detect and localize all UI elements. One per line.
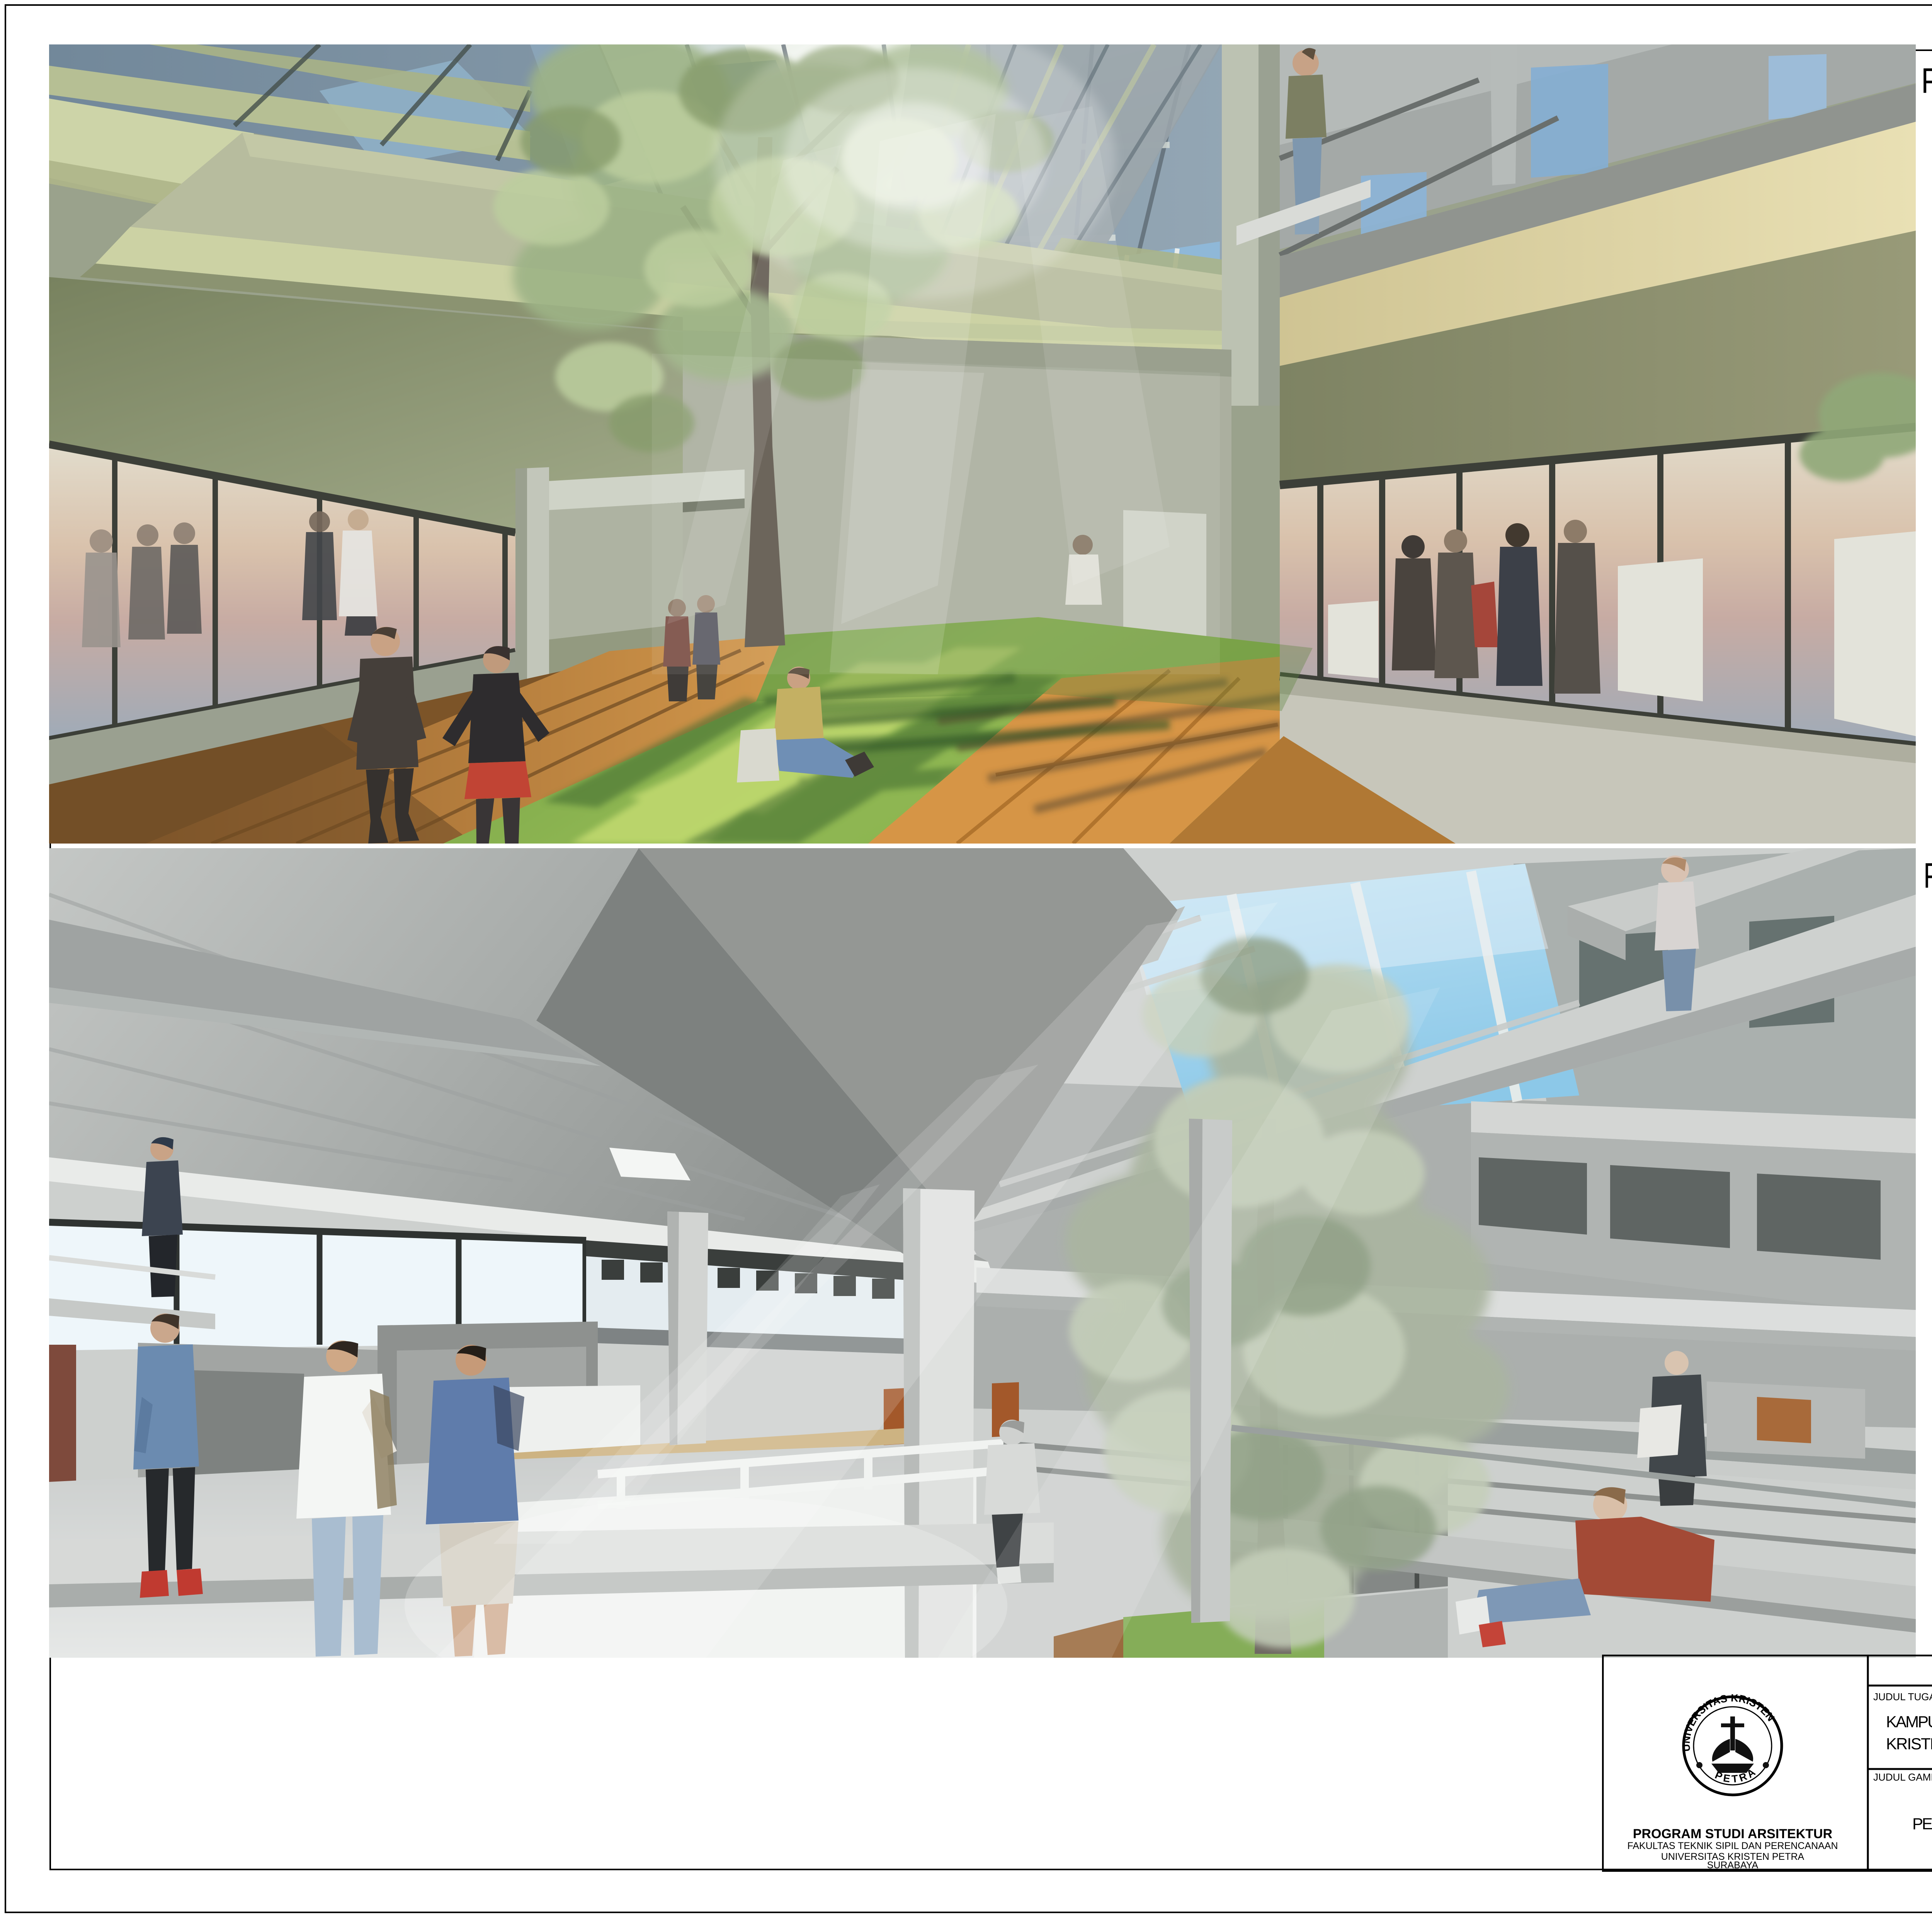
svg-text:JUDUL TUGAS: JUDUL TUGAS xyxy=(1873,1691,1932,1703)
svg-text:PERSPEKTIF STUDIO LANJUTAN LAN: PERSPEKTIF STUDIO LANJUTAN LANTAI 2 xyxy=(1923,856,1932,895)
svg-text:PERSPEKTIF STUDIO SEMESTER LAN: PERSPEKTIF STUDIO SEMESTER LANJUTAN xyxy=(1912,1815,1932,1833)
svg-text:FAKULTAS TEKNIK SIPIL DAN PERE: FAKULTAS TEKNIK SIPIL DAN PERENCANAAN xyxy=(1627,1840,1838,1851)
svg-text:SURABAYA: SURABAYA xyxy=(1707,1860,1759,1871)
svg-text:JUDUL GAMBAR: JUDUL GAMBAR xyxy=(1873,1771,1932,1783)
svg-text:PERSPEKTIF STUDIO LANJUTAN LAN: PERSPEKTIF STUDIO LANJUTAN LANTAI DASAR xyxy=(1921,61,1932,100)
svg-text:KAMPUS PROGRAM STUDI ARSITEKTU: KAMPUS PROGRAM STUDI ARSITEKTUR UNIVERSI… xyxy=(1886,1713,1932,1731)
svg-text:PROGRAM STUDI ARSITEKTUR: PROGRAM STUDI ARSITEKTUR xyxy=(1633,1827,1832,1841)
svg-text:KRISTEN PETRA DI SURABAYA: KRISTEN PETRA DI SURABAYA xyxy=(1886,1735,1932,1753)
